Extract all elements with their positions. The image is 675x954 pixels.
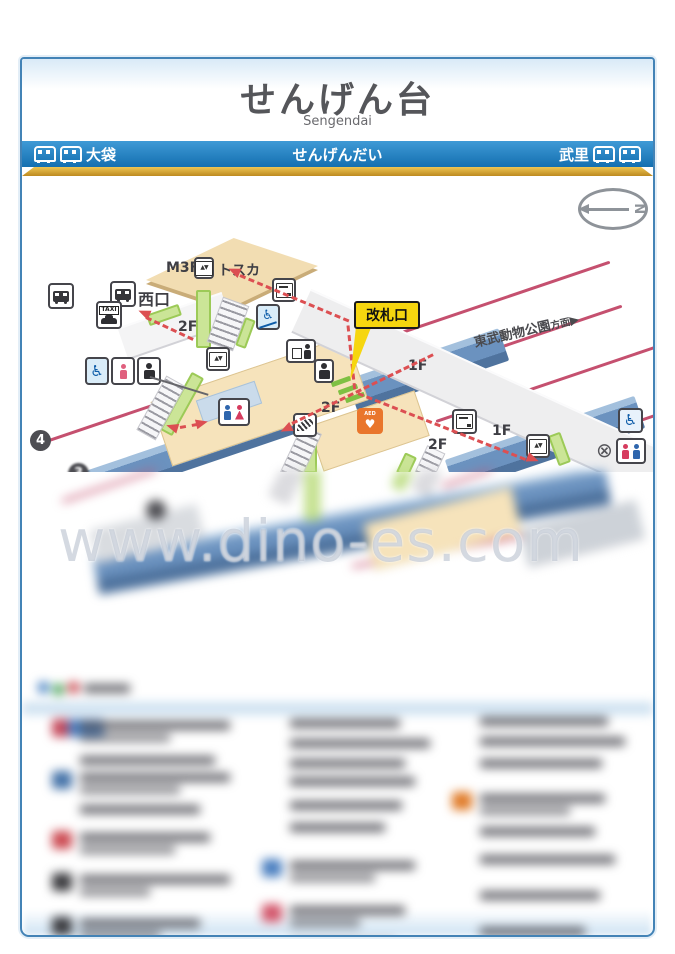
station-map: N M3F トスカ — [22, 176, 653, 472]
nav-right: 武里 — [559, 144, 641, 165]
legend-item-text — [80, 932, 160, 937]
accessible-toilet-icon: ♿ — [85, 357, 109, 385]
elevator-arrows: ▲▼ — [214, 356, 221, 362]
legend-item-text — [480, 807, 570, 815]
closed-mark-icon: ⊗ — [596, 438, 613, 462]
taxi-sign-label: TAXI — [99, 306, 118, 315]
legend-item-text — [290, 719, 400, 728]
aed-icon: AED ♥ — [357, 408, 383, 434]
direction-label: 東武動物公園方面▶ — [472, 308, 581, 351]
legend-item-text — [480, 717, 608, 726]
direction-text: 東武動物公園 — [473, 319, 552, 351]
compass-n-letter: N — [631, 203, 646, 214]
legend-mini-icon — [53, 684, 64, 695]
legend-item-text — [290, 823, 385, 832]
legend-item-text — [290, 739, 430, 748]
gold-ribbon — [22, 167, 653, 176]
floor-label-1f: 1F — [492, 423, 511, 439]
legend-item-icon — [52, 917, 72, 935]
legend-mini-icon — [38, 682, 49, 693]
compass-arrow — [578, 204, 589, 214]
legend-item-icon — [262, 859, 282, 877]
baby-care-icon — [111, 357, 135, 385]
legend-item-text — [290, 906, 405, 915]
elevator-arrows: ▲▼ — [534, 443, 541, 449]
person-glyph — [319, 363, 330, 379]
restroom-icon — [218, 398, 250, 426]
elevator-icon: ▲▼ — [206, 347, 230, 371]
legend-item-text — [480, 737, 625, 746]
floor-label-2f: 2F — [428, 437, 447, 453]
heart-glyph: ♥ — [365, 418, 376, 430]
legend-mini-title — [84, 684, 130, 693]
legend-item-text — [80, 833, 210, 842]
platform-number-badge: 4 — [30, 430, 51, 451]
right-station-label: 武里 — [559, 144, 589, 165]
legend-item-text — [480, 827, 595, 836]
taxi-car-glyph — [101, 318, 117, 324]
bus-glyph — [53, 291, 69, 302]
legend-item-text — [80, 875, 230, 884]
station-map-page: せんげん台 Sengendai 大袋 せんげんだい 武里 N — [0, 0, 675, 954]
ticket-office-icon — [286, 339, 316, 363]
ostomate-icon — [137, 357, 161, 385]
direction-arrow-icon: ▶ — [568, 312, 580, 328]
legend-item-text — [290, 861, 415, 870]
legend-band — [22, 702, 653, 715]
legend-item-text — [480, 855, 615, 864]
restroom-icon — [616, 438, 646, 464]
stairs — [412, 470, 448, 496]
wheelchair-glyph: ♿ — [262, 309, 274, 322]
legend-item-text — [80, 786, 180, 794]
legend-item-text — [80, 756, 215, 765]
compass-line — [587, 208, 629, 211]
ticket-gate-callout: 改札口 — [354, 301, 420, 329]
direction-suffix: 方面 — [549, 317, 571, 332]
elevator-glyph: ▲▼ — [195, 261, 213, 276]
office-glyph — [292, 344, 311, 359]
bus-stop-icon — [48, 283, 74, 309]
female-glyph — [633, 444, 640, 459]
legend-item-icon — [52, 831, 72, 849]
legend-item-text — [80, 734, 170, 742]
north-compass-icon: N — [578, 188, 648, 230]
elevator-arrows: ▲▼ — [200, 265, 207, 271]
legend-item-icon — [52, 771, 72, 789]
taxi-icon: TAXI — [96, 301, 122, 329]
legend-item-icon — [452, 792, 472, 810]
bus-glyph — [115, 289, 131, 300]
ticket-machine-glyph — [456, 414, 473, 429]
legend-mini-icon — [68, 682, 79, 693]
legend-item-icon — [52, 873, 72, 891]
legend-blur-layer — [22, 632, 653, 932]
legend-item-text — [80, 846, 175, 854]
page-title-romaji: Sengendai — [22, 114, 653, 129]
wheelchair-ramp-icon: ♿ — [256, 304, 280, 330]
wheelchair-glyph: ♿ — [90, 364, 103, 379]
train-icon — [619, 146, 641, 162]
train-icon — [593, 146, 615, 162]
female-glyph — [235, 405, 244, 420]
legend-item-text — [480, 927, 585, 936]
baby-glyph — [120, 364, 127, 379]
legend-item-text — [480, 794, 605, 803]
accessible-toilet-icon: ♿ — [618, 408, 643, 433]
legend-item-text — [480, 891, 600, 900]
adjacent-stations-bar: 大袋 せんげんだい 武里 — [22, 141, 653, 167]
elevator-icon: ▲▼ — [194, 257, 214, 279]
clerk-glyph — [304, 344, 311, 359]
content-box: せんげん台 Sengendai 大袋 せんげんだい 武里 N — [20, 57, 655, 937]
wheelchair-glyph: ♿ — [624, 413, 637, 428]
legend-item-text — [80, 721, 230, 730]
legend-item-text — [80, 919, 200, 928]
legend-item-text — [290, 759, 405, 768]
legend-item-text — [480, 759, 602, 768]
legend-item-text — [290, 919, 360, 927]
legend-item-icon — [262, 904, 282, 922]
legend-item-text — [290, 801, 402, 810]
legend-item-text — [80, 888, 150, 896]
legend-item-text — [290, 874, 375, 882]
window-glyph — [292, 348, 302, 359]
legend-item-text — [80, 805, 200, 814]
elevator-glyph: ▲▼ — [209, 352, 227, 367]
male-glyph — [224, 405, 231, 420]
watermark: www.dino-es.com — [58, 507, 655, 575]
elevator-glyph: ▲▼ — [529, 439, 547, 454]
legend-section — [22, 632, 653, 932]
legend-item-text — [290, 777, 415, 786]
male-glyph — [622, 444, 629, 459]
legend-item-text — [80, 773, 230, 782]
station-staff-icon — [314, 359, 334, 383]
